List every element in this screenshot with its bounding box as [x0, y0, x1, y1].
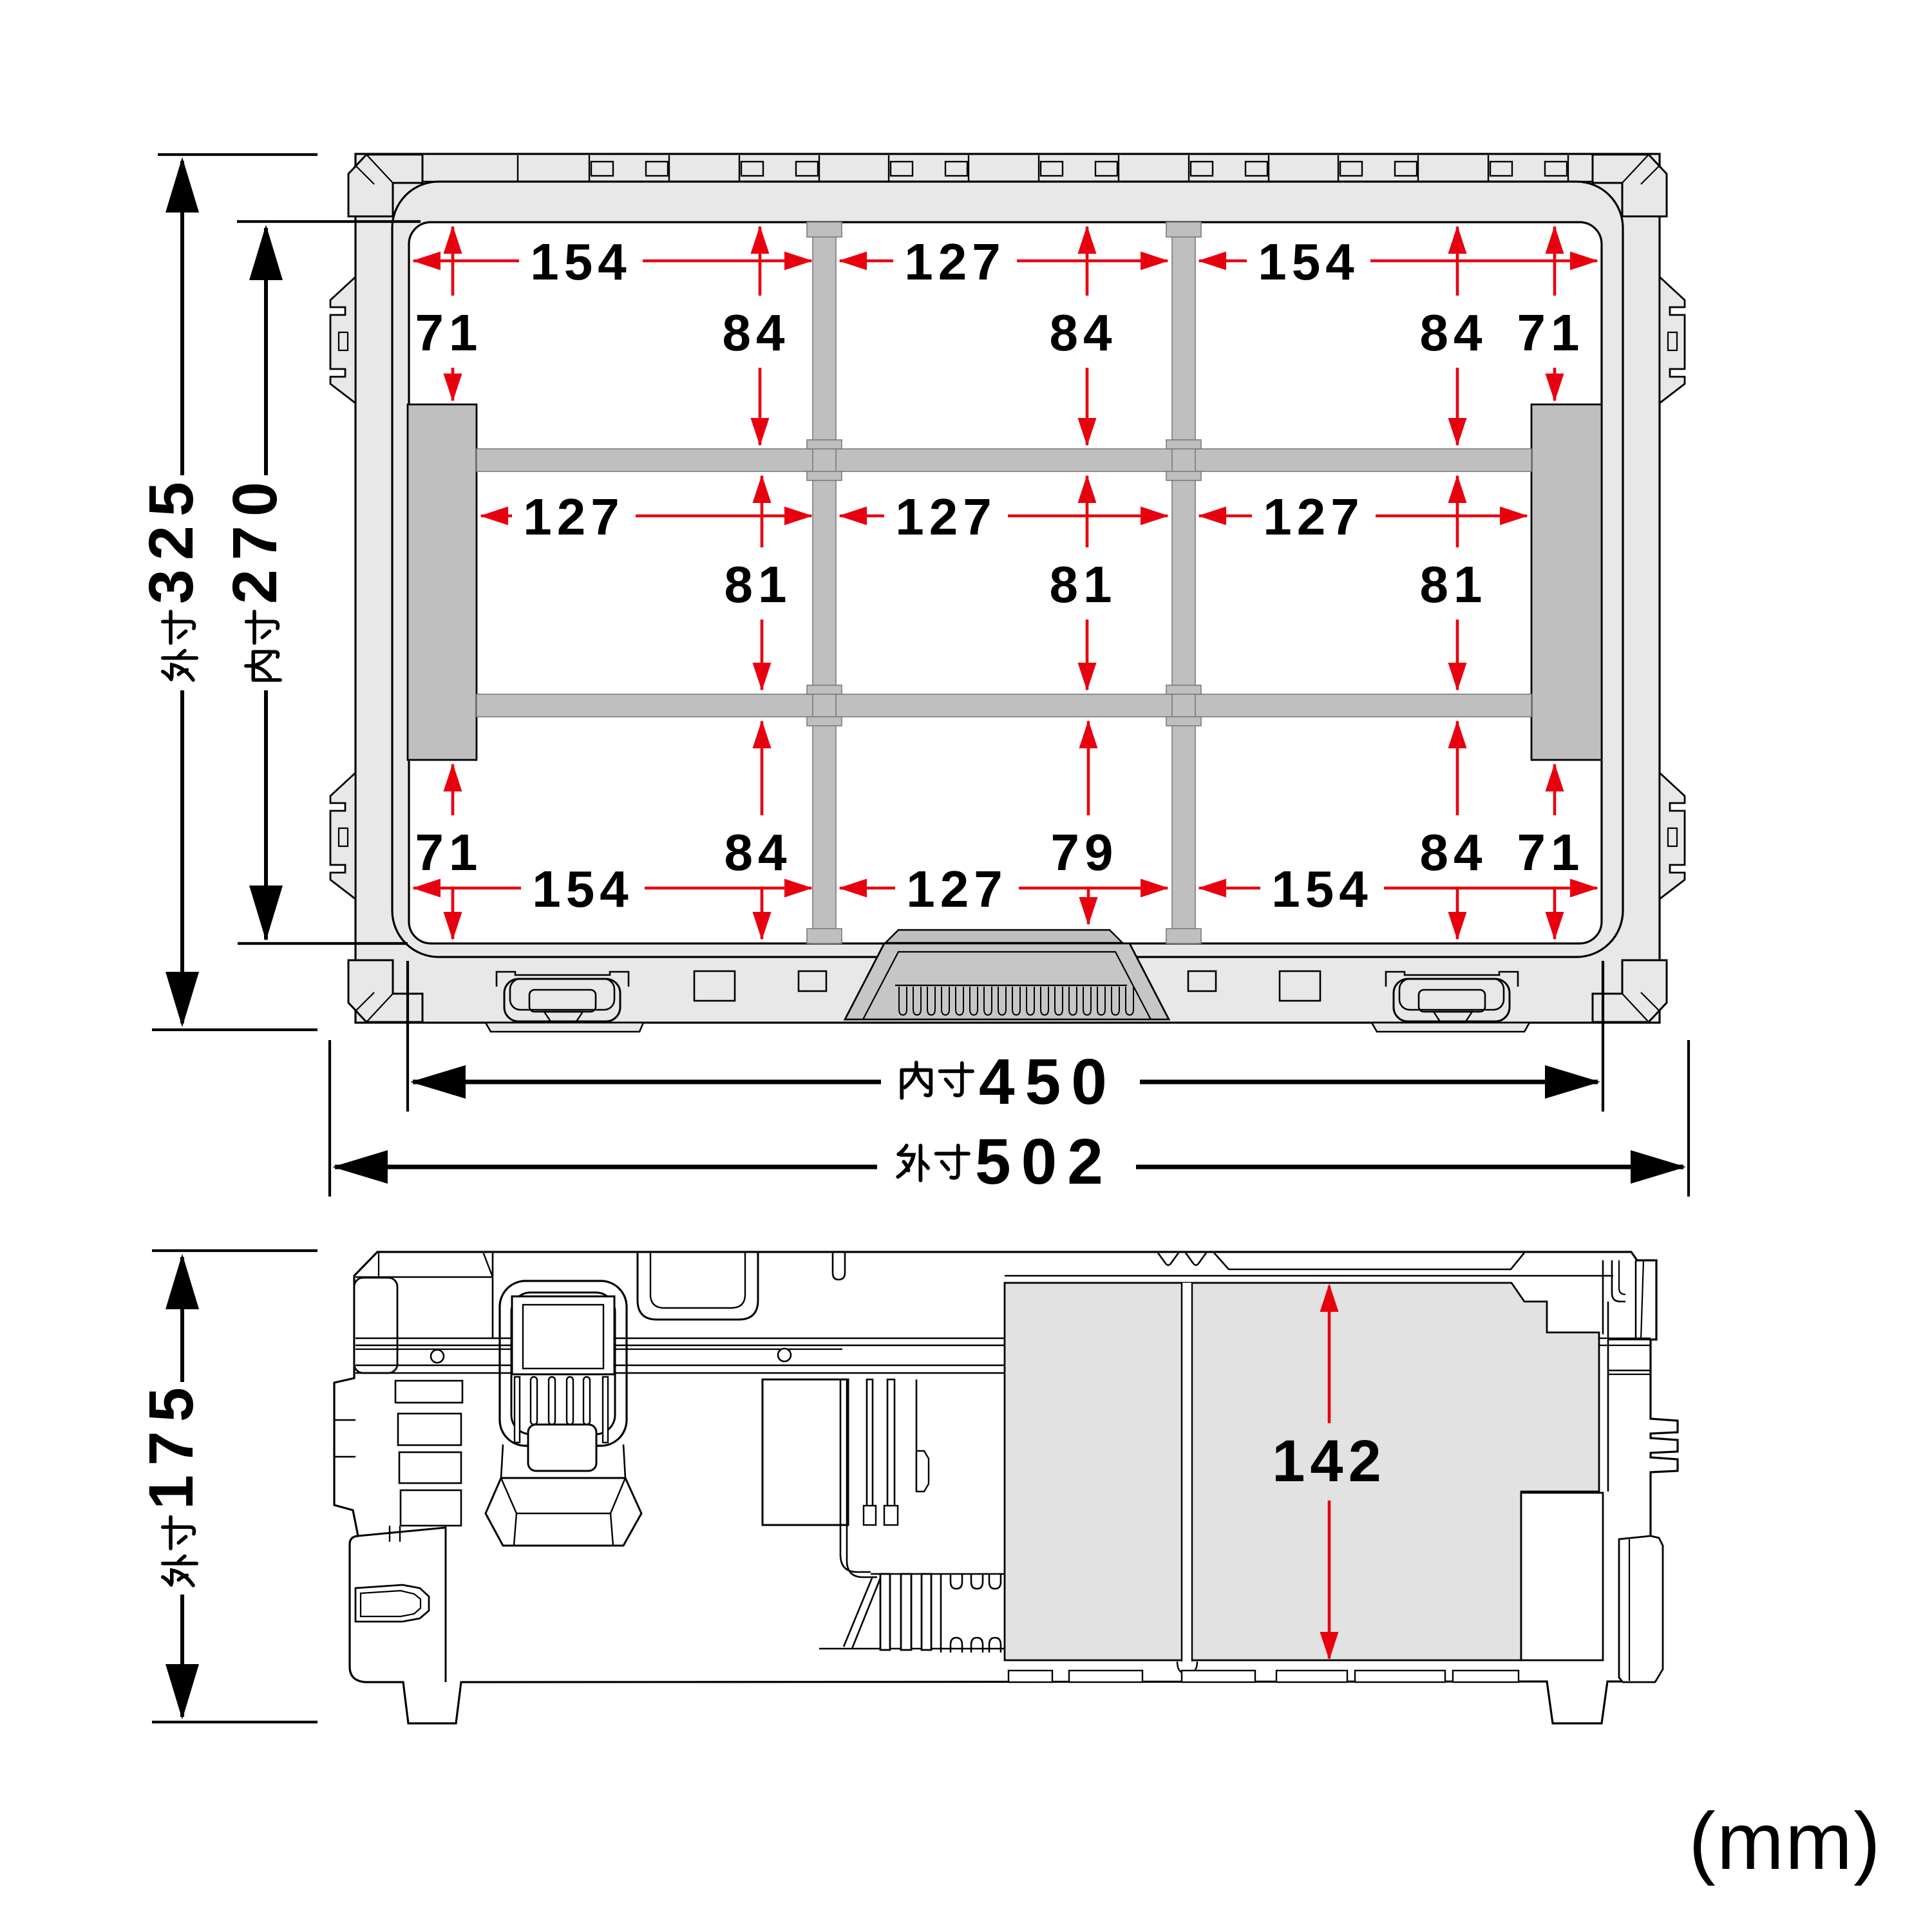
- svg-text:81: 81: [724, 556, 792, 613]
- svg-text:127: 127: [906, 860, 1007, 918]
- svg-text:79: 79: [1051, 824, 1119, 881]
- svg-text:270: 270: [220, 473, 290, 604]
- svg-text:154: 154: [530, 233, 631, 290]
- svg-text:325: 325: [136, 473, 206, 604]
- svg-text:127: 127: [904, 233, 1005, 290]
- svg-text:71: 71: [415, 824, 483, 881]
- svg-text:175: 175: [136, 1378, 206, 1510]
- svg-text:71: 71: [415, 304, 483, 361]
- svg-text:71: 71: [1517, 304, 1585, 361]
- svg-text:84: 84: [723, 304, 790, 361]
- svg-text:450: 450: [979, 1046, 1117, 1118]
- svg-text:84: 84: [1420, 304, 1488, 361]
- svg-text:(mm): (mm): [1689, 1797, 1882, 1886]
- svg-text:142: 142: [1272, 1428, 1387, 1494]
- svg-text:127: 127: [895, 488, 996, 545]
- svg-text:154: 154: [1258, 233, 1359, 290]
- svg-text:502: 502: [975, 1126, 1113, 1198]
- svg-text:84: 84: [1420, 824, 1488, 881]
- svg-text:71: 71: [1517, 824, 1585, 881]
- svg-text:127: 127: [1263, 488, 1364, 545]
- svg-text:127: 127: [523, 488, 624, 545]
- svg-text:154: 154: [1271, 860, 1372, 918]
- svg-text:81: 81: [1050, 556, 1117, 613]
- svg-text:84: 84: [1050, 304, 1117, 361]
- svg-text:81: 81: [1420, 556, 1488, 613]
- svg-text:84: 84: [724, 824, 792, 881]
- svg-text:154: 154: [532, 860, 633, 918]
